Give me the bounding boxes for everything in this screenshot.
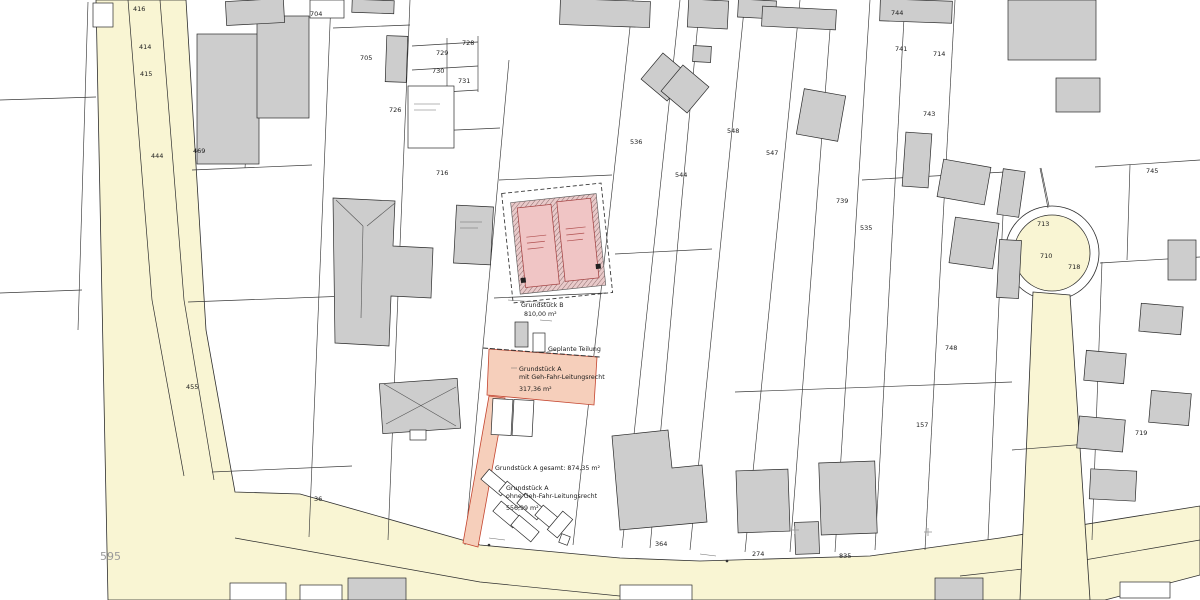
illegible-text-mark — [489, 538, 505, 540]
building-footprint — [1056, 78, 1100, 112]
building-footprint — [949, 217, 999, 269]
parcel-number: 704 — [310, 10, 322, 18]
parcel-number: 716 — [436, 169, 448, 177]
parcel-number: 748 — [945, 344, 957, 352]
building-footprint — [796, 89, 845, 142]
parcel-number: 731 — [458, 77, 470, 85]
parcel-number: 455 — [186, 383, 198, 391]
parcel-number: 595 — [100, 550, 121, 563]
building-footprint — [1149, 390, 1192, 425]
building-footprint — [348, 578, 406, 600]
parcel-number: 729 — [436, 49, 448, 57]
building-outline — [1120, 582, 1170, 598]
building-footprint — [687, 0, 728, 29]
building-footprint — [736, 469, 790, 533]
parcel-number: 719 — [1135, 429, 1147, 437]
map-canvas: 4164144154445954694557047057287297307317… — [0, 0, 1200, 600]
parcel-number: 741 — [895, 45, 907, 53]
parcel-number: 416 — [133, 5, 145, 13]
illegible-text-mark — [700, 554, 716, 556]
building-footprint — [937, 159, 991, 205]
parcel-number: 726 — [389, 106, 401, 114]
boundary-line — [494, 293, 606, 298]
survey-point — [726, 560, 729, 563]
building-footprint — [612, 430, 707, 530]
annotation-label: Geplante Teilung — [548, 346, 601, 353]
building-footprint — [1084, 350, 1126, 383]
parcel-number: 469 — [193, 147, 205, 155]
parcel-number: 710 — [1040, 252, 1052, 260]
illegible-text-mark — [540, 320, 552, 321]
annotation-label: Grundstück A — [519, 366, 562, 373]
building-outline — [512, 400, 534, 437]
parcel-number: 743 — [923, 110, 935, 118]
building-footprint — [902, 132, 932, 188]
boundary-line — [192, 165, 312, 170]
building-footprint — [225, 0, 284, 26]
annotation-label: 810,00 m² — [524, 311, 557, 318]
parcel-number: 714 — [933, 50, 945, 58]
building-footprint — [257, 16, 309, 118]
boundary-line — [0, 290, 82, 293]
parcel-number: 713 — [1037, 220, 1049, 228]
building-outline — [491, 399, 513, 436]
annotation-label: 317,36 m² — [519, 386, 552, 393]
parcel-number: 157 — [916, 421, 928, 429]
building-outline — [230, 583, 286, 600]
parcel-number: 739 — [836, 197, 848, 205]
boundary-line — [1041, 168, 1049, 206]
building-outline — [300, 585, 342, 600]
parcel-number: 274 — [752, 550, 764, 558]
building-footprint — [1089, 469, 1137, 501]
boundary-line — [78, 2, 88, 330]
building-footprint — [935, 578, 983, 600]
building-footprint — [693, 46, 712, 63]
parcel-number: 718 — [1068, 263, 1080, 271]
annotation-label: Grundstück A — [506, 485, 549, 492]
boundary-line — [309, 0, 331, 537]
building-outline — [93, 3, 113, 27]
planned-buildings-group — [502, 183, 613, 303]
survey-corner-mark — [521, 277, 526, 282]
building-footprint — [819, 461, 877, 535]
boundary-line — [0, 97, 96, 100]
boundary-line — [412, 66, 478, 70]
parcel-number: 364 — [655, 540, 667, 548]
boundary-line — [1095, 160, 1200, 167]
building-outline — [559, 534, 571, 546]
survey-corner-mark — [596, 264, 601, 269]
boundary-line — [499, 175, 612, 180]
parcel-number: 444 — [151, 152, 163, 160]
boundary-line — [735, 382, 1012, 392]
building-footprint — [1168, 240, 1196, 280]
boundary-line — [212, 466, 352, 472]
building-footprint — [197, 34, 259, 164]
building-footprint — [996, 239, 1021, 298]
building-footprint — [1008, 0, 1096, 60]
building-footprint — [560, 0, 651, 28]
parcel-number: 415 — [140, 70, 152, 78]
building-footprint — [762, 6, 837, 30]
building-footprint — [333, 198, 433, 346]
building-footprint — [794, 522, 819, 555]
annotation-label: mit Geh-Fahr-Leitungsrecht — [519, 374, 605, 381]
annotation-label: Grundstück B — [521, 302, 564, 309]
survey-point — [488, 544, 491, 547]
boundary-line — [1127, 165, 1130, 260]
boundary-line — [188, 296, 348, 302]
annotation-label: 556,99 m² — [506, 505, 539, 512]
building-footprint — [454, 205, 494, 265]
annotation-label: Grundstück A gesamt: 874,35 m² — [495, 465, 601, 472]
boundary-line — [925, 0, 955, 550]
building-footprint — [385, 36, 408, 83]
parcel-number: 705 — [360, 54, 372, 62]
boundary-line — [745, 0, 800, 552]
building-footprint — [997, 169, 1025, 218]
building-footprint — [515, 322, 528, 347]
parcel-number: 544 — [675, 171, 687, 179]
parcel-number: 728 — [462, 39, 474, 47]
parcel-number: 535 — [860, 224, 872, 232]
building-outline — [533, 333, 545, 352]
boundary-line — [875, 0, 905, 550]
cadastral-map: 4164144154445954694557047057287297307317… — [0, 0, 1200, 600]
parcel-number: 745 — [1146, 167, 1158, 175]
parcel-number: 547 — [766, 149, 778, 157]
boundary-line — [615, 249, 712, 254]
boundary-line — [333, 25, 410, 28]
boundary-line — [1040, 168, 1048, 208]
annotation-label: ohne Geh-Fahr-Leitungsrecht — [506, 493, 598, 500]
parcel-number: 730 — [432, 67, 444, 75]
parcel-number: 414 — [139, 43, 151, 51]
parcel-number: 744 — [891, 9, 903, 17]
building-outline — [620, 585, 692, 600]
parcel-number: 536 — [630, 138, 642, 146]
building-footprint — [352, 0, 394, 14]
building-outline — [410, 430, 426, 440]
building-outline — [408, 86, 454, 148]
building-footprint — [1077, 416, 1126, 452]
building-footprint — [1139, 303, 1183, 335]
parcel-number: 548 — [727, 127, 739, 135]
parcel-number: 36 — [314, 495, 322, 503]
parcel-number: 835 — [839, 552, 851, 560]
